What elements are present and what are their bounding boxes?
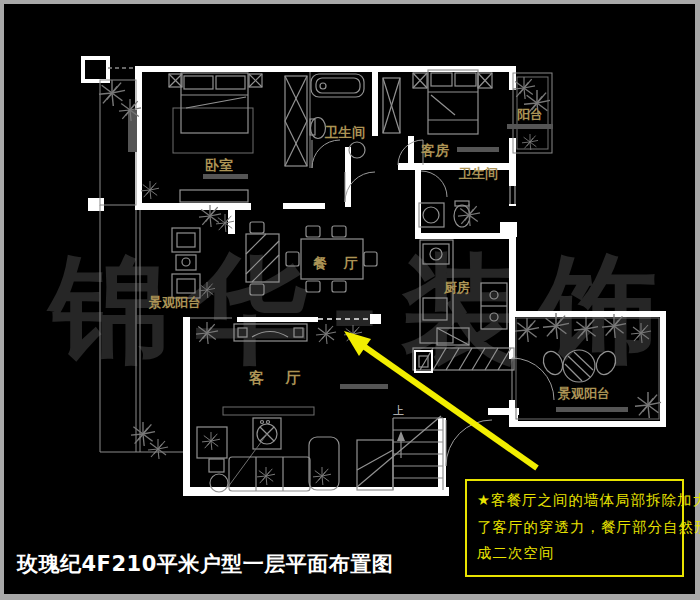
label-dining: 餐 厅 xyxy=(313,255,364,271)
callout-line-1: ★客餐厅之间的墙体局部拆除加大 xyxy=(477,492,700,508)
page-title: 玫瑰纪4F210平米户型一层平面布置图 xyxy=(16,552,393,576)
callout-line-2: 了客厅的穿透力，餐厅部分自然形 xyxy=(477,519,700,535)
label-balcony-top: 阳台 xyxy=(517,107,543,122)
label-stairs-up: 上 xyxy=(393,404,404,417)
floor-plan-canvas: 锦华-装饰 xyxy=(0,0,700,600)
callout-box: ★客餐厅之间的墙体局部拆除加大 了客厅的穿透力，餐厅部分自然形 成二次空间 xyxy=(466,480,700,576)
label-bedroom: 卧室 xyxy=(205,157,233,173)
label-bathroom-mid: 卫生间 xyxy=(458,166,498,181)
screenshot-root: 锦华-装饰 xyxy=(0,0,700,600)
label-view-balcony-right: 景观阳台 xyxy=(557,386,610,401)
label-bathroom-top: 卫生间 xyxy=(324,124,366,140)
label-guest-room: 客房 xyxy=(420,142,449,158)
label-living: 客 厅 xyxy=(248,369,308,387)
label-view-balcony-left: 景观阳台 xyxy=(148,295,201,310)
label-kitchen: 厨房 xyxy=(443,280,470,295)
callout-line-3: 成二次空间 xyxy=(477,545,555,561)
